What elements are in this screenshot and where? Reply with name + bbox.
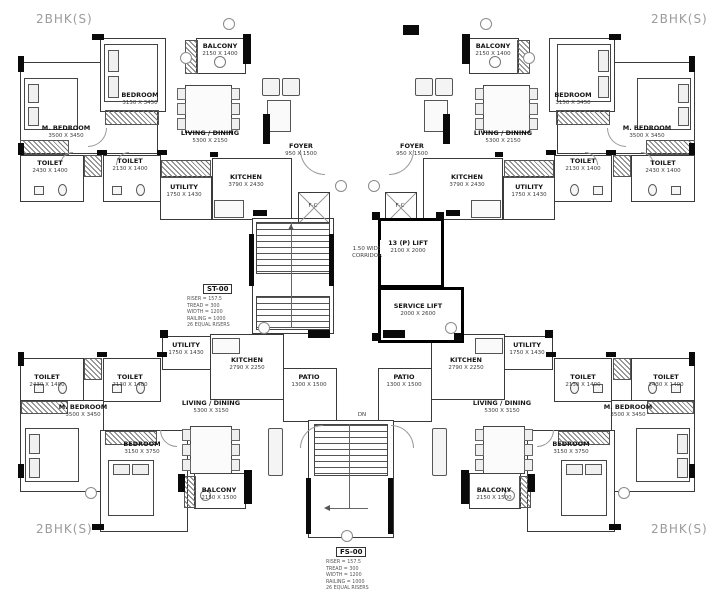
wall-segment (97, 150, 107, 155)
wall-segment (609, 34, 621, 40)
wall-segment (157, 150, 167, 155)
chair (524, 444, 533, 456)
grid-bubble (480, 18, 492, 30)
pillow (132, 464, 149, 475)
armchair (435, 78, 453, 96)
label-fc-shaft: F-C (298, 203, 328, 210)
unit-type-bottom-left: 2BHK(S) (36, 522, 93, 536)
dining-table (483, 426, 525, 474)
wall-segment (495, 152, 503, 157)
label-toilet: TOILET2130 X 1400 (104, 158, 156, 172)
bed (24, 78, 78, 130)
wall-segment (383, 330, 405, 338)
label-kitchen: KITCHEN3790 X 2430 (216, 174, 276, 188)
wall-segment (244, 470, 252, 504)
wall-segment (178, 474, 185, 492)
chair (231, 444, 240, 456)
wall-segment (436, 212, 444, 220)
stair-direction-arrow (288, 224, 294, 230)
wall-segment (403, 25, 419, 35)
dining-table (483, 85, 530, 133)
unit-type-bottom-right: 2BHK(S) (651, 522, 708, 536)
wall-segment (210, 152, 218, 157)
pillow (29, 458, 40, 478)
stair-treads (314, 424, 388, 476)
label-utility: UTILITY1750 X 1430 (162, 342, 210, 356)
label-toilet: TOILET2430 X 1400 (641, 374, 691, 388)
sofa (432, 428, 447, 476)
dining-table (185, 85, 232, 133)
bed (636, 428, 690, 482)
pillow (677, 458, 688, 478)
pillow (28, 84, 39, 103)
label-fc-shaft: F-C (385, 203, 415, 210)
label-down: DN (352, 412, 372, 419)
label-living-dining: LIVING / DINING5300 X 3150 (179, 400, 243, 414)
chair (475, 103, 484, 115)
chair (524, 429, 533, 441)
label-balcony: BALCONY2150 X 1500 (469, 487, 519, 501)
label-m-bedroom: M. BEDROOM3500 X 3450 (611, 125, 683, 139)
chair (475, 444, 484, 456)
wall-segment (18, 464, 24, 478)
wall-segment (249, 234, 254, 286)
label-kitchen: KITCHEN3790 X 2430 (437, 174, 497, 188)
wardrobe (20, 140, 69, 155)
wall-segment (18, 352, 24, 366)
chair (529, 88, 538, 100)
bed (108, 460, 154, 516)
chair (177, 88, 186, 100)
pillow (678, 84, 689, 103)
chair (182, 444, 191, 456)
wall-segment (18, 56, 24, 72)
stair-center-line (349, 424, 350, 508)
wall-segment (546, 150, 556, 155)
wc (648, 184, 657, 196)
dining-table (190, 426, 232, 474)
label-m-bedroom: M. BEDROOM3500 X 3450 (595, 404, 661, 418)
unit-type-top-right: 2BHK(S) (651, 12, 708, 26)
label-bedroom: BEDROOM3150 X 3450 (543, 92, 603, 106)
wall-segment (443, 114, 450, 144)
wall-segment (18, 143, 24, 155)
kitchen-counter (214, 200, 244, 218)
kitchen-counter (212, 338, 240, 354)
chair (475, 459, 484, 471)
wall-segment (329, 234, 334, 286)
wardrobe (556, 110, 610, 125)
kitchen-counter (475, 338, 503, 354)
label-living-dining: LIVING / DINING5300 X 3150 (470, 400, 534, 414)
grid-bubble (335, 180, 347, 192)
chair (529, 103, 538, 115)
kitchen-counter (471, 200, 501, 218)
stair-direction-arrow (324, 505, 330, 511)
label-balcony: BALCONY2150 X 1400 (196, 43, 244, 57)
grid-bubble (85, 487, 97, 499)
pillow (29, 434, 40, 454)
bed (561, 460, 607, 516)
wall-segment (263, 114, 270, 144)
label-m-bedroom: M. BEDROOM3500 X 3450 (30, 125, 102, 139)
wash-basin (593, 186, 603, 195)
wall-segment (454, 333, 462, 341)
floor-plan: 2BHK(S) 2BHK(S) 2BHK(S) 2BHK(S) M. BEDRO… (0, 0, 713, 606)
wall-segment (306, 478, 311, 534)
chair (182, 429, 191, 441)
grid-bubble (223, 18, 235, 30)
stair-code-fs: FS-00 (336, 547, 366, 557)
wall-segment (92, 524, 104, 530)
wall-segment (461, 470, 469, 504)
wall-segment (528, 474, 535, 492)
label-m-bedroom: M. BEDROOM3500 X 3450 (50, 404, 116, 418)
armchair (262, 78, 280, 96)
utility-counter (161, 160, 211, 178)
wall-segment (92, 34, 104, 40)
pillow (108, 50, 119, 72)
chair (182, 459, 191, 471)
wall-segment (689, 352, 695, 366)
wall-segment (160, 330, 168, 338)
wall-segment (606, 352, 616, 357)
label-patio: PATIO1300 X 1500 (284, 374, 334, 388)
chair (524, 459, 533, 471)
wall-segment (446, 210, 460, 216)
label-utility: UTILITY1750 X 1430 (503, 342, 551, 356)
wash-basin (112, 186, 122, 195)
wall-segment (545, 330, 553, 338)
label-balcony: BALCONY2150 X 1500 (194, 487, 244, 501)
stair-code-st: ST-00 (203, 284, 232, 294)
label-utility: UTILITY1750 X 1430 (505, 184, 553, 198)
label-balcony: BALCONY2150 X 1400 (469, 43, 517, 57)
unit-type-top-left: 2BHK(S) (36, 12, 93, 26)
label-living-dining: LIVING / DINING5300 X 2150 (471, 130, 535, 144)
label-toilet: TOILET2430 X 1400 (22, 160, 78, 174)
label-toilet: TOILET2430 X 1400 (635, 160, 691, 174)
stair-exit-line (330, 508, 368, 509)
balcony-table (214, 56, 226, 68)
label-foyer: FOYER950 X 1500 (278, 143, 324, 157)
pillow (28, 107, 39, 126)
wall-segment (609, 524, 621, 530)
pillow (678, 107, 689, 126)
label-kitchen: KITCHEN2790 X 2250 (219, 357, 275, 371)
wardrobe (646, 140, 695, 155)
armchair (282, 78, 300, 96)
label-bedroom: BEDROOM3150 X 3450 (110, 92, 170, 106)
door-arc (391, 425, 414, 448)
wall-segment (606, 150, 616, 155)
chair (231, 103, 240, 115)
tv-cabinet (267, 100, 291, 132)
label-kitchen: KITCHEN2790 X 2250 (438, 357, 494, 371)
door-arc (300, 425, 323, 448)
grid-bubble (341, 530, 353, 542)
grid-bubble (258, 322, 270, 334)
grid-bubble (180, 52, 192, 64)
balcony-table (489, 56, 501, 68)
label-bedroom: BEDROOM3150 X 3750 (543, 441, 599, 455)
label-passenger-lift: 13 (P) LIFT2100 X 2000 (380, 240, 436, 254)
pillow (598, 50, 609, 72)
duct-shaft (613, 358, 631, 380)
label-service-lift: SERVICE LIFT2000 X 2600 (382, 303, 454, 317)
duct-shaft (613, 155, 631, 177)
label-toilet: TOILET2430 X 1400 (22, 374, 72, 388)
chair (177, 103, 186, 115)
wall-segment (253, 210, 267, 216)
wall-segment (372, 212, 380, 220)
label-foyer: FOYER950 X 1500 (389, 143, 435, 157)
stair-specs-fs: RISER = 157.5TREAD = 300WIDTH = 1200RAIL… (326, 560, 369, 593)
bed (637, 78, 691, 130)
wall-segment (689, 143, 695, 155)
chair (231, 88, 240, 100)
label-utility: UTILITY1750 X 1430 (160, 184, 208, 198)
pillow (566, 464, 583, 475)
pillow (585, 464, 602, 475)
chair (475, 429, 484, 441)
wall-segment (388, 478, 393, 534)
utility-counter (504, 160, 554, 178)
duct-shaft (84, 155, 102, 177)
wc (58, 184, 67, 196)
label-patio: PATIO1300 X 1500 (379, 374, 429, 388)
armchair (415, 78, 433, 96)
wall-segment (372, 333, 380, 341)
wardrobe (105, 110, 159, 125)
grid-bubble (368, 180, 380, 192)
wall-segment (308, 330, 330, 338)
stair-center-line (291, 222, 292, 328)
wall-segment (689, 56, 695, 72)
chair (475, 88, 484, 100)
wc (570, 184, 579, 196)
wall-segment (243, 34, 251, 64)
label-living-dining: LIVING / DINING5300 X 2150 (178, 130, 242, 144)
wall-segment (689, 464, 695, 478)
label-toilet: TOILET2130 X 1400 (104, 374, 156, 388)
chair (231, 429, 240, 441)
wall-segment (97, 352, 107, 357)
bed (25, 428, 79, 482)
stair-specs-st: RISER = 157.5TREAD = 300WIDTH = 1200RAIL… (187, 297, 230, 330)
label-bedroom: BEDROOM3150 X 3750 (114, 441, 170, 455)
wash-basin (34, 186, 44, 195)
wc (136, 184, 145, 196)
label-toilet: TOILET2130 X 1400 (557, 158, 609, 172)
chair (231, 459, 240, 471)
sofa (268, 428, 283, 476)
pillow (677, 434, 688, 454)
label-toilet: TOILET2130 X 1400 (557, 374, 609, 388)
grid-bubble (523, 52, 535, 64)
grid-bubble (618, 487, 630, 499)
duct-shaft (84, 358, 102, 380)
pillow (113, 464, 130, 475)
wash-basin (671, 186, 681, 195)
